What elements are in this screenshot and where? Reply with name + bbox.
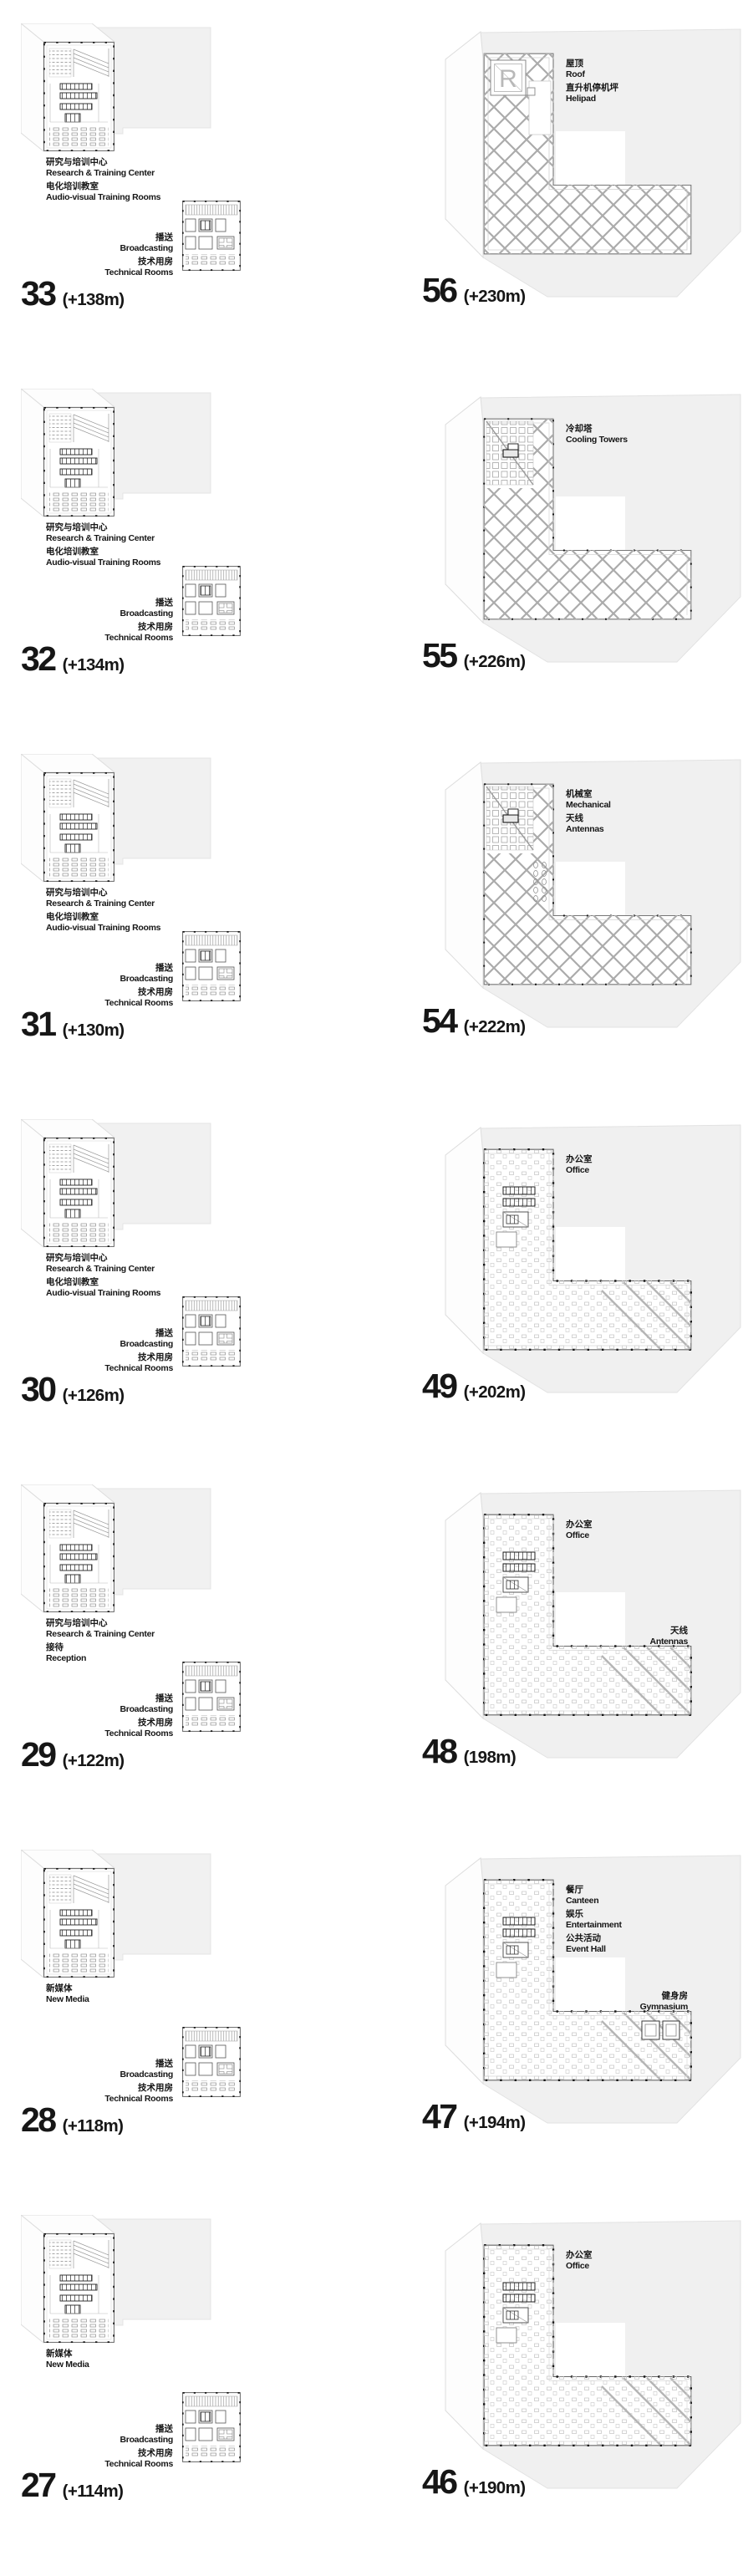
annotation-en: New Media — [46, 1994, 234, 2004]
annotation-zh: 播送 — [21, 1328, 173, 1339]
floor-label: 32 (+134m) — [21, 642, 124, 676]
floor-height: (+126m) — [63, 1386, 125, 1406]
plan-annotation-main: 办公室 Office — [566, 1520, 743, 1544]
annotation-zh: 冷却塔 — [566, 424, 743, 435]
floor-label: 56 (+230m) — [422, 273, 525, 308]
annotation-en: Gymnasium — [521, 2002, 688, 2012]
floor-height: (+226m) — [464, 652, 526, 672]
floor-number: 33 — [21, 277, 55, 311]
plan-annotation-main: 新媒体 New Media — [46, 1983, 234, 2008]
annotation-zh: 办公室 — [566, 2250, 743, 2261]
annotation-en: Broadcasting — [21, 1339, 173, 1349]
plan-annotation-main: 研究与培训中心 Research & Training Center 电化培训教… — [46, 157, 234, 206]
annotation-en: Research & Training Center — [46, 899, 234, 909]
annotation-zh: 公共活动 — [566, 1933, 743, 1944]
annotation-zh: 研究与培训中心 — [46, 522, 234, 533]
floor-number: 49 — [422, 1369, 456, 1403]
annotation-zh: 播送 — [21, 598, 173, 608]
plan-annotation-main: 机械室 Mechanical 天线 Antennas — [566, 789, 743, 837]
floor-number: 47 — [422, 2100, 456, 2134]
floor-plan-30-technical — [182, 1296, 241, 1367]
plan-annotation-right: 天线 Antennas — [521, 1626, 688, 1650]
floor-plan-28-main — [43, 1868, 115, 1978]
floor-number: 30 — [21, 1372, 55, 1407]
floor-label: 46 (+190m) — [422, 2465, 525, 2499]
annotation-en: Broadcasting — [21, 2435, 173, 2445]
floor-number: 27 — [21, 2468, 55, 2502]
floor-cell-29: 研究与培训中心 Research & Training Center 接待 Re… — [21, 1484, 263, 1845]
annotation-en: Audio-visual Training Rooms — [46, 1288, 234, 1298]
floor-number: 48 — [422, 1734, 456, 1769]
annotation-zh: 娱乐 — [566, 1909, 743, 1920]
annotation-en: Broadcasting — [21, 974, 173, 984]
annotation-en: Research & Training Center — [46, 533, 234, 543]
annotation-en: Reception — [46, 1653, 234, 1663]
annotation-zh: 技术用房 — [21, 622, 173, 633]
floor-cell-27: 新媒体 New Media 播送 Broadcasting 技术用房 Techn… — [21, 2215, 263, 2576]
annotation-zh: 办公室 — [566, 1520, 743, 1530]
annotation-zh: 新媒体 — [46, 2349, 234, 2360]
floor-number: 56 — [422, 273, 456, 308]
annotation-zh: 研究与培训中心 — [46, 1618, 234, 1629]
floor-height: (+118m) — [63, 2116, 124, 2136]
floor-plan-49 — [483, 1148, 692, 1351]
annotation-zh: 机械室 — [566, 789, 743, 800]
floor-height: (+190m) — [464, 2478, 526, 2498]
floor-cell-48: 办公室 Office 天线 Antennas 48 (198m) — [422, 1482, 743, 1843]
floor-number: 29 — [21, 1738, 55, 1772]
annotation-en: Entertainment — [566, 1920, 743, 1930]
floor-plan-27-technical — [182, 2392, 241, 2462]
annotation-en: Antennas — [521, 1637, 688, 1647]
floor-height: (+138m) — [63, 290, 125, 310]
plan-annotation-main: 研究与培训中心 Research & Training Center 电化培训教… — [46, 522, 234, 571]
annotation-zh: 播送 — [21, 1693, 173, 1704]
annotation-en: Office — [566, 2261, 743, 2271]
floor-label: 30 (+126m) — [21, 1372, 124, 1407]
floor-label: 28 (+118m) — [21, 2103, 123, 2137]
floor-cell-33: 研究与培训中心 Research & Training Center 电化培训教… — [21, 23, 263, 384]
annotation-zh: 研究与培训中心 — [46, 157, 234, 168]
annotation-zh: 技术用房 — [21, 2448, 173, 2459]
plan-annotation-main: 研究与培训中心 Research & Training Center 电化培训教… — [46, 1253, 234, 1301]
annotation-en: Research & Training Center — [46, 1629, 234, 1639]
plan-annotation-main: 办公室 Office — [566, 1154, 743, 1179]
floor-label: 55 (+226m) — [422, 639, 525, 673]
annotation-en: Broadcasting — [21, 2069, 173, 2080]
floor-plan-33-main — [43, 42, 115, 151]
annotation-en: New Media — [46, 2360, 234, 2370]
floor-height: (+134m) — [63, 655, 125, 675]
annotation-en: Research & Training Center — [46, 168, 234, 178]
floor-cell-47: 餐厅 Canteen 娱乐 Entertainment 公共活动 Event H… — [422, 1847, 743, 2208]
plan-annotation-main: 冷却塔 Cooling Towers — [566, 424, 743, 448]
annotation-en: Antennas — [566, 824, 743, 834]
floor-label: 49 (+202m) — [422, 1369, 525, 1403]
floor-height: (198m) — [464, 1748, 517, 1768]
floor-label: 54 (+222m) — [422, 1004, 525, 1038]
floor-cell-55: 冷却塔 Cooling Towers 55 (+226m) — [422, 386, 743, 747]
annotation-en: Office — [566, 1165, 743, 1175]
floor-plan-31-main — [43, 772, 115, 882]
annotation-en: Audio-visual Training Rooms — [46, 192, 234, 202]
annotation-zh: 技术用房 — [21, 987, 173, 998]
floor-height: (+130m) — [63, 1021, 125, 1041]
floor-height: (+230m) — [464, 287, 526, 307]
annotation-zh: 播送 — [21, 2059, 173, 2069]
annotation-zh: 播送 — [21, 232, 173, 243]
annotation-zh: 技术用房 — [21, 2083, 173, 2094]
annotation-zh: 技术用房 — [21, 1718, 173, 1728]
floor-plan-46 — [483, 2244, 692, 2446]
annotation-zh: 新媒体 — [46, 1983, 234, 1994]
floor-plan-32-technical — [182, 566, 241, 636]
floor-height: (+122m) — [63, 1751, 125, 1771]
annotation-en: Event Hall — [566, 1944, 743, 1954]
floor-number: 46 — [422, 2465, 456, 2499]
annotation-zh: 餐厅 — [566, 1885, 743, 1896]
annotation-zh: 播送 — [21, 963, 173, 974]
floor-number: 32 — [21, 642, 55, 676]
floor-plan-33-technical — [182, 201, 241, 271]
floor-plan-32-main — [43, 407, 115, 517]
annotation-zh: 技术用房 — [21, 1352, 173, 1363]
annotation-zh: 技术用房 — [21, 257, 173, 267]
plan-annotation-right: 健身房 Gymnasium — [521, 1991, 688, 2015]
floor-cell-46: 办公室 Office 46 (+190m) — [422, 2212, 743, 2573]
floor-cell-54: 机械室 Mechanical 天线 Antennas 54 (+222m) — [422, 751, 743, 1112]
annotation-en: Helipad — [566, 94, 743, 104]
annotation-zh: 研究与培训中心 — [46, 888, 234, 899]
floor-cell-32: 研究与培训中心 Research & Training Center 电化培训教… — [21, 389, 263, 750]
floor-label: 33 (+138m) — [21, 277, 124, 311]
floor-cell-49: 办公室 Office 49 (+202m) — [422, 1117, 743, 1478]
plan-annotation-main: 研究与培训中心 Research & Training Center 接待 Re… — [46, 1618, 234, 1667]
floor-plan-29-main — [43, 1503, 115, 1612]
floor-number: 31 — [21, 1007, 55, 1041]
annotation-zh: 电化培训教室 — [46, 912, 234, 923]
floor-label: 31 (+130m) — [21, 1007, 124, 1041]
annotation-zh: 播送 — [21, 2424, 173, 2435]
floor-plan-55 — [483, 418, 692, 620]
floor-height: (+194m) — [464, 2113, 526, 2133]
floor-label: 48 (198m) — [422, 1734, 516, 1769]
annotation-zh: 电化培训教室 — [46, 181, 234, 192]
plan-annotation-main: 屋顶 Roof 直升机停机坪 Helipad — [566, 59, 743, 107]
floor-plan-28-technical — [182, 2027, 241, 2097]
annotation-en: Broadcasting — [21, 608, 173, 619]
plan-annotation-main: 办公室 Office — [566, 2250, 743, 2274]
plan-annotation-main: 餐厅 Canteen 娱乐 Entertainment 公共活动 Event H… — [566, 1885, 743, 1957]
annotation-en: Broadcasting — [21, 1704, 173, 1714]
annotation-zh: 研究与培训中心 — [46, 1253, 234, 1264]
annotation-en: Office — [566, 1530, 743, 1540]
annotation-en: Broadcasting — [21, 243, 173, 253]
annotation-zh: 健身房 — [521, 1991, 688, 2002]
floor-cell-56: 屋顶 Roof 直升机停机坪 Helipad 56 (+230m) — [422, 21, 743, 382]
floor-number: 54 — [422, 1004, 456, 1038]
plan-annotation-main: 新媒体 New Media — [46, 2349, 234, 2373]
floor-number: 55 — [422, 639, 456, 673]
annotation-en: Mechanical — [566, 800, 743, 810]
floor-label: 27 (+114m) — [21, 2468, 123, 2502]
annotation-zh: 直升机停机坪 — [566, 83, 743, 94]
annotation-zh: 接待 — [46, 1642, 234, 1653]
floor-label: 29 (+122m) — [21, 1738, 124, 1772]
floor-plan-48 — [483, 1514, 692, 1716]
floor-plan-31-technical — [182, 931, 241, 1001]
annotation-en: Cooling Towers — [566, 435, 743, 445]
floor-label: 47 (+194m) — [422, 2100, 525, 2134]
annotation-zh: 电化培训教室 — [46, 547, 234, 557]
floor-height: (+114m) — [63, 2482, 124, 2502]
annotation-en: Audio-visual Training Rooms — [46, 923, 234, 933]
floor-cell-28: 新媒体 New Media 播送 Broadcasting 技术用房 Techn… — [21, 1850, 263, 2211]
floor-height: (+202m) — [464, 1382, 526, 1403]
annotation-en: Roof — [566, 69, 743, 79]
floor-cell-31: 研究与培训中心 Research & Training Center 电化培训教… — [21, 754, 263, 1115]
floor-plan-30-main — [43, 1138, 115, 1247]
floor-cell-30: 研究与培训中心 Research & Training Center 电化培训教… — [21, 1119, 263, 1480]
annotation-zh: 天线 — [566, 813, 743, 824]
annotation-en: Canteen — [566, 1896, 743, 1906]
annotation-en: Audio-visual Training Rooms — [46, 557, 234, 568]
annotation-zh: 办公室 — [566, 1154, 743, 1165]
annotation-en: Research & Training Center — [46, 1264, 234, 1274]
floor-plan-27-main — [43, 2233, 115, 2343]
floor-plan-29-technical — [182, 1662, 241, 1732]
annotation-zh: 屋顶 — [566, 59, 743, 69]
floor-height: (+222m) — [464, 1017, 526, 1037]
plan-annotation-main: 研究与培训中心 Research & Training Center 电化培训教… — [46, 888, 234, 936]
annotation-zh: 天线 — [521, 1626, 688, 1637]
floor-number: 28 — [21, 2103, 55, 2137]
annotation-zh: 电化培训教室 — [46, 1277, 234, 1288]
